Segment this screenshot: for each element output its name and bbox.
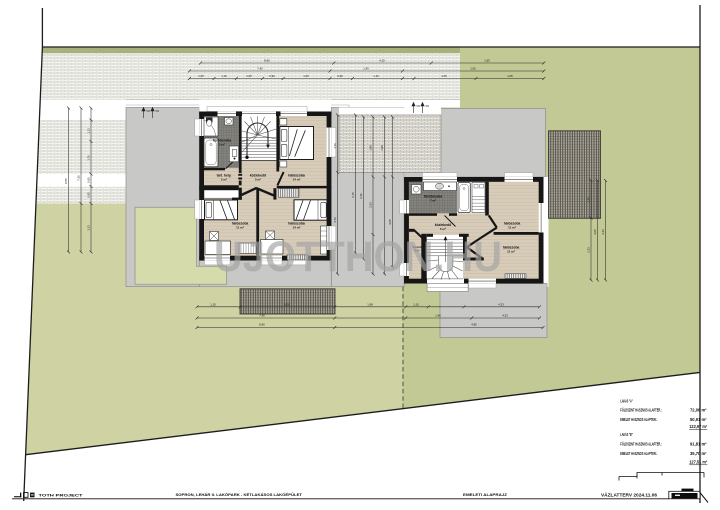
svg-text:UJOTTHON.HU: UJOTTHON.HU xyxy=(214,233,502,281)
svg-text:1,46: 1,46 xyxy=(435,314,441,318)
svg-text:1,10: 1,10 xyxy=(221,74,227,78)
svg-text:SOPRON, LEHÁR II. LAKÓPARK - K: SOPRON, LEHÁR II. LAKÓPARK - KÉTLAKÁSOS … xyxy=(176,492,303,497)
svg-text:11 m²: 11 m² xyxy=(236,226,244,230)
svg-text:91,81 m²: 91,81 m² xyxy=(690,441,707,446)
svg-text:1,05: 1,05 xyxy=(441,74,447,78)
svg-text:14 m²: 14 m² xyxy=(293,226,301,230)
svg-text:FÖLDSZINT HASZNOS ALAPTER.:: FÖLDSZINT HASZNOS ALAPTER.: xyxy=(620,407,662,412)
svg-text:72,06 m²: 72,06 m² xyxy=(690,407,707,412)
svg-text:6,46: 6,46 xyxy=(359,193,363,199)
svg-text:2 m²: 2 m² xyxy=(221,178,227,182)
svg-text:11 m²: 11 m² xyxy=(508,226,516,230)
svg-text:0,60: 0,60 xyxy=(87,177,91,183)
svg-text:3 m²: 3 m² xyxy=(255,178,261,182)
svg-text:1,15: 1,15 xyxy=(210,302,216,306)
svg-text:EMELET HASZNOS ALAPTER.:: EMELET HASZNOS ALAPTER.: xyxy=(620,417,657,422)
svg-text:2,53: 2,53 xyxy=(369,202,373,208)
svg-text:6,15: 6,15 xyxy=(351,192,355,198)
svg-text:0,90: 0,90 xyxy=(269,74,275,78)
svg-text:1,05: 1,05 xyxy=(198,74,204,78)
svg-text:4,10: 4,10 xyxy=(379,59,385,63)
svg-text:5 m²: 5 m² xyxy=(440,227,446,231)
svg-text:35,70 m²: 35,70 m² xyxy=(690,451,707,456)
svg-text:14 m²: 14 m² xyxy=(293,178,301,182)
svg-text:4,33: 4,33 xyxy=(498,302,504,306)
svg-text:4,33: 4,33 xyxy=(601,229,605,235)
svg-text:50,91 m²: 50,91 m² xyxy=(690,417,707,422)
svg-text:1,05: 1,05 xyxy=(303,74,309,78)
svg-text:0,90: 0,90 xyxy=(337,74,343,78)
svg-text:FÖLDSZINT HASZNOS ALAPTER.:: FÖLDSZINT HASZNOS ALAPTER.: xyxy=(620,441,662,446)
svg-text:7,26: 7,26 xyxy=(77,175,81,181)
svg-text:4,05: 4,05 xyxy=(593,229,597,235)
svg-text:8,60: 8,60 xyxy=(264,59,270,63)
svg-text:8,60: 8,60 xyxy=(259,323,265,327)
svg-text:1,36: 1,36 xyxy=(587,197,591,203)
svg-text:4,33: 4,33 xyxy=(502,314,508,318)
svg-text:7,40: 7,40 xyxy=(259,314,265,318)
svg-text:LAKÁS "B": LAKÁS "B" xyxy=(620,432,633,437)
svg-text:1,05: 1,05 xyxy=(470,67,476,71)
svg-text:5 m²: 5 m² xyxy=(219,143,225,147)
svg-text:1,65: 1,65 xyxy=(484,59,490,63)
svg-text:8,55: 8,55 xyxy=(64,178,68,184)
svg-text:EMELET HASZNOS ALAPTER.:: EMELET HASZNOS ALAPTER.: xyxy=(620,451,657,456)
svg-text:1,98: 1,98 xyxy=(369,145,373,151)
svg-text:4,05: 4,05 xyxy=(388,219,392,225)
svg-text:2,33: 2,33 xyxy=(587,247,591,253)
svg-text:0,95: 0,95 xyxy=(87,192,91,198)
svg-text:1,13: 1,13 xyxy=(87,128,91,134)
svg-text:127,51 m²: 127,51 m² xyxy=(689,459,708,464)
svg-text:6,00: 6,00 xyxy=(284,302,290,306)
svg-text:LAKÁS "A": LAKÁS "A" xyxy=(620,399,633,404)
svg-text:TOTH PROJECT: TOTH PROJECT xyxy=(39,492,84,497)
svg-text:1,98: 1,98 xyxy=(380,145,384,151)
svg-text:4,85: 4,85 xyxy=(471,323,477,327)
svg-text:11 m²: 11 m² xyxy=(507,250,515,254)
svg-text:7 m²: 7 m² xyxy=(430,199,436,203)
svg-text:1,45: 1,45 xyxy=(363,67,369,71)
svg-text:1,98: 1,98 xyxy=(367,302,373,306)
svg-text:1,70: 1,70 xyxy=(333,143,337,149)
svg-text:4,76: 4,76 xyxy=(333,217,337,223)
svg-text:1,05: 1,05 xyxy=(246,74,252,78)
svg-text:VÁZLATTERV 2024.11.06: VÁZLATTERV 2024.11.06 xyxy=(601,493,658,498)
svg-text:EMELETI ALAPRAJZ: EMELETI ALAPRAJZ xyxy=(463,493,508,497)
svg-text:1,13: 1,13 xyxy=(87,225,91,231)
svg-text:7,40: 7,40 xyxy=(257,67,263,71)
svg-text:122,97 m²: 122,97 m² xyxy=(689,424,708,429)
svg-text:1,70: 1,70 xyxy=(87,155,91,161)
svg-text:1,10: 1,10 xyxy=(373,74,379,78)
svg-text:1,05: 1,05 xyxy=(507,74,513,78)
svg-text:1,10: 1,10 xyxy=(413,302,419,306)
